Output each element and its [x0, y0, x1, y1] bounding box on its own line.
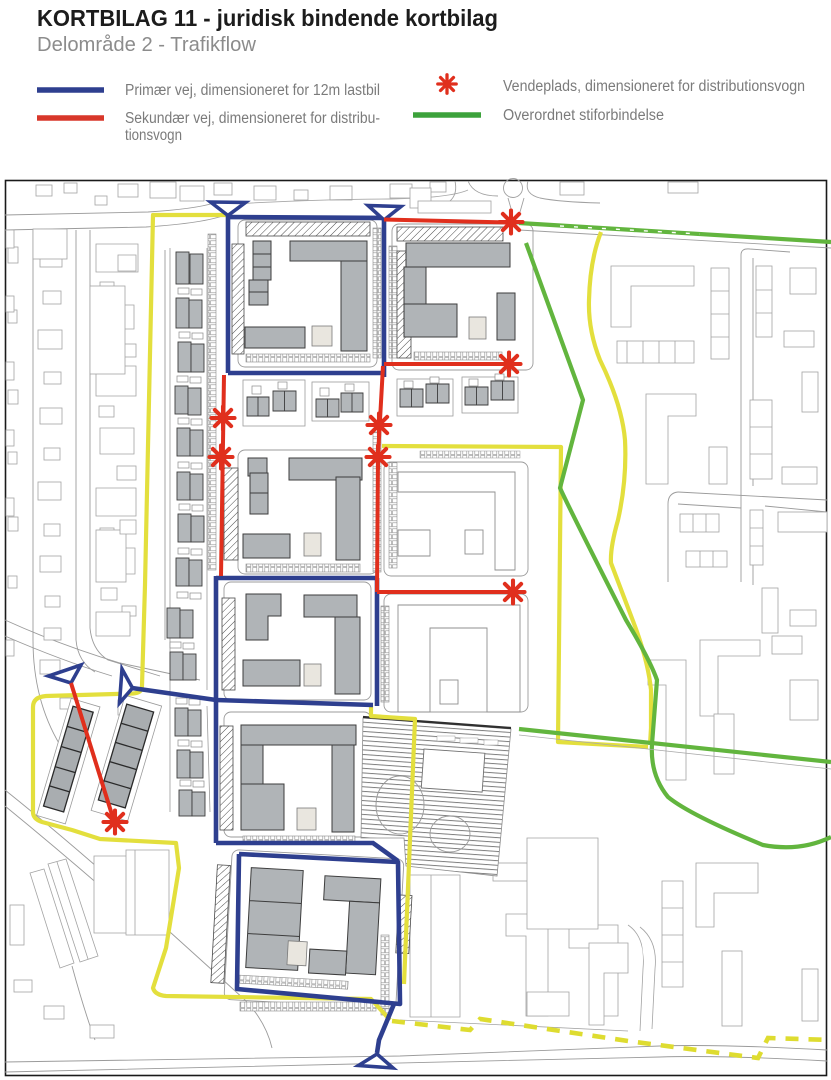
- svg-text:Overordnet stiforbindelse: Overordnet stiforbindelse: [503, 107, 664, 124]
- svg-text:KORTBILAG 11 - juridisk binden: KORTBILAG 11 - juridisk bindende kortbil…: [37, 5, 498, 31]
- svg-text:Vendeplads, dimensioneret for: Vendeplads, dimensioneret for distributi…: [503, 78, 805, 95]
- svg-text:Primær vej, dimensioneret for: Primær vej, dimensioneret for 12m lastbi…: [125, 82, 380, 99]
- svg-text:tionsvogn: tionsvogn: [125, 127, 182, 144]
- svg-text:Sekundær vej, dimensioneret fo: Sekundær vej, dimensioneret for distribu…: [125, 110, 380, 127]
- svg-text:Delområde 2 - Trafikflow: Delområde 2 - Trafikflow: [37, 34, 257, 56]
